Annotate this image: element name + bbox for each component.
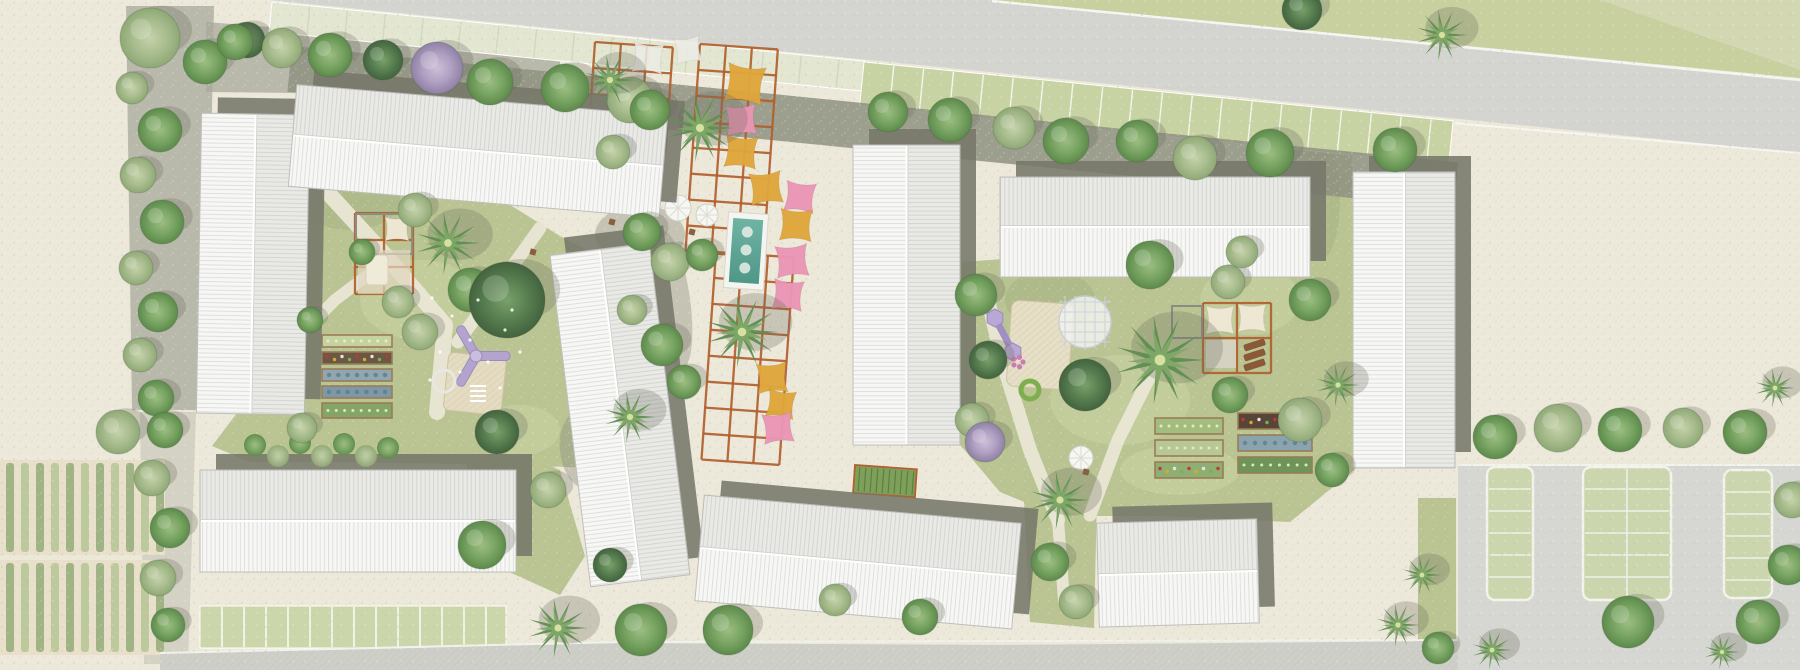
tree-highlight (157, 515, 171, 529)
raised-bed-east (1238, 457, 1312, 473)
tree-canopy (965, 422, 1005, 462)
tree-canopy (530, 472, 566, 508)
green-wall (853, 465, 917, 497)
raised-bed-east-sprouts (1160, 425, 1163, 428)
raised-bed-west-sprouts (343, 409, 346, 412)
roof-face-shaded (907, 145, 961, 445)
tree-highlight (483, 418, 498, 433)
tree-highlight (1181, 144, 1196, 159)
raised-bed-east-flowers (1158, 467, 1161, 470)
tree-canopy (1598, 408, 1642, 452)
raised-bed-west-flowers (325, 355, 328, 358)
raised-bed-west-sprouts (385, 409, 388, 412)
tree-highlight (140, 466, 153, 479)
tree-canopy (349, 239, 375, 265)
tree-highlight (122, 78, 133, 89)
tree-highlight (658, 250, 671, 263)
raised-bed-west-plants (364, 373, 368, 377)
tree-canopy (398, 193, 432, 227)
palm-crown (696, 124, 704, 132)
tree-highlight (104, 418, 119, 433)
tree-highlight (1038, 550, 1051, 563)
tree-highlight (624, 613, 642, 631)
pool (723, 212, 768, 291)
tree-canopy (1736, 600, 1780, 644)
raised-bed-east-sprouts (1192, 425, 1195, 428)
raised-bed-east-flowers (1187, 467, 1190, 470)
tree-highlight (223, 30, 236, 43)
shade-sail (762, 412, 795, 445)
raised-bed-west-sprouts (327, 340, 330, 343)
tree-highlight (191, 48, 206, 63)
raised-bed-west-plants (327, 390, 331, 394)
raised-bed-west-sprouts (360, 409, 363, 412)
meadow-flower (518, 350, 521, 353)
tree-highlight (292, 418, 303, 429)
raised-bed-west (322, 403, 392, 418)
palm-crown (1155, 355, 1166, 366)
tree-highlight (146, 566, 159, 579)
raised-bed-east-sprouts (1168, 425, 1171, 428)
meadow-flower (450, 314, 453, 317)
tree-highlight (125, 257, 137, 269)
tree-highlight (1428, 638, 1439, 649)
raised-bed-east-sprouts (1305, 464, 1308, 467)
palm-crown (1420, 573, 1425, 578)
tree-canopy (120, 8, 180, 68)
raised-bed-east-sprouts (1160, 447, 1163, 450)
tree-highlight (976, 348, 989, 361)
tree-highlight (146, 116, 161, 131)
raised-bed-east-flowers (1173, 467, 1176, 470)
tree-canopy (123, 338, 157, 372)
tree-highlight (825, 590, 836, 601)
building-block-f (1353, 156, 1471, 468)
tree-highlight (1232, 242, 1243, 253)
tree-canopy (819, 584, 851, 616)
raised-bed-east-sprouts (1216, 447, 1219, 450)
palm-crown (1335, 382, 1340, 387)
palm-crown (627, 414, 633, 420)
meadow-flower (428, 378, 431, 381)
raised-bed-east-plants (1273, 441, 1277, 445)
hedge-shrub (244, 434, 266, 456)
raised-bed-east-flowers (1257, 418, 1260, 421)
tree-highlight (302, 312, 311, 321)
palm-crown (444, 239, 452, 247)
tree-highlight (1611, 605, 1629, 623)
tree-canopy (1373, 128, 1417, 172)
tree-highlight (456, 276, 471, 291)
tree-canopy (96, 410, 140, 454)
tree-highlight (692, 245, 703, 256)
shade-sail (775, 244, 810, 279)
raised-bed-west-plants (355, 373, 359, 377)
raised-bed-west-plants (345, 390, 349, 394)
tree-canopy (651, 243, 689, 281)
tree-canopy (308, 33, 352, 77)
tree-canopy (596, 135, 630, 169)
tree-highlight (1254, 137, 1271, 154)
raised-bed-west-sprouts (335, 340, 338, 343)
tree-highlight (648, 331, 663, 346)
tree-canopy (1059, 359, 1111, 411)
palm-crown (738, 328, 747, 337)
meadow-flower (498, 386, 501, 389)
tree-highlight (404, 199, 416, 211)
tree-highlight (875, 99, 889, 113)
raised-bed-west-sprouts (385, 340, 388, 343)
tree-highlight (1670, 415, 1684, 429)
raised-bed-west-flowers (363, 358, 366, 361)
raised-bed-east-sprouts (1287, 464, 1290, 467)
tree-canopy (1043, 118, 1089, 164)
tree-highlight (536, 478, 549, 491)
parasol (1069, 446, 1093, 470)
tree-canopy (617, 295, 647, 325)
tree-highlight (1134, 249, 1151, 266)
tree-canopy (1226, 236, 1258, 268)
tree-canopy (1278, 398, 1322, 442)
raised-bed-east-plants (1283, 441, 1287, 445)
parasol (696, 204, 718, 226)
tree-canopy (402, 314, 438, 350)
tree-highlight (388, 292, 399, 303)
raised-bed-east-sprouts (1243, 464, 1246, 467)
raised-bed-east-sprouts (1251, 464, 1254, 467)
tree-canopy (119, 251, 153, 285)
raised-bed-west-plants (345, 373, 349, 377)
tree-canopy (623, 213, 661, 251)
tree-canopy (297, 307, 323, 333)
tree-canopy (1031, 543, 1069, 581)
raised-bed-east-sprouts (1260, 464, 1263, 467)
tree-canopy (138, 292, 178, 332)
tree-highlight (1123, 127, 1138, 142)
tree-highlight (1296, 286, 1311, 301)
tree-highlight (1051, 126, 1067, 142)
tree-canopy (641, 324, 683, 366)
tree-canopy (138, 380, 174, 416)
raised-bed-east-sprouts (1278, 464, 1281, 467)
tree-highlight (354, 244, 363, 253)
tree-highlight (673, 371, 685, 383)
raised-bed-east-flowers (1209, 470, 1212, 473)
tree-canopy (1173, 136, 1217, 180)
tree-canopy (667, 365, 701, 399)
palm-crown (1720, 650, 1724, 654)
raised-bed-east-sprouts (1296, 464, 1299, 467)
roof-face-shaded (1404, 172, 1455, 468)
raised-bed-west-flowers (355, 355, 358, 358)
tree-canopy (1126, 241, 1174, 289)
tree-canopy (467, 59, 513, 105)
raised-bed-east-sprouts (1216, 425, 1219, 428)
tree-highlight (126, 163, 139, 176)
raised-bed-east-flowers (1265, 421, 1268, 424)
raised-bed-east-sprouts (1168, 447, 1171, 450)
tree-highlight (908, 605, 921, 618)
tree-canopy (593, 548, 627, 582)
raised-bed-west-sprouts (351, 409, 354, 412)
tree-canopy (686, 239, 718, 271)
tree-canopy (1663, 408, 1703, 448)
meadow-flower (503, 328, 506, 331)
raised-bed-east (1155, 418, 1223, 434)
hedge-shrub (333, 433, 355, 455)
meadow-flower (476, 298, 479, 301)
tree-highlight (1068, 368, 1086, 386)
tree-canopy (1534, 404, 1582, 452)
palm-crown (554, 624, 561, 631)
play-structure-hub (470, 350, 482, 362)
raised-bed-west-sprouts (368, 409, 371, 412)
hedge-shrub (311, 445, 333, 467)
palm-crown (1490, 648, 1495, 653)
raised-bed-east (1155, 440, 1223, 456)
tree-highlight (961, 409, 973, 421)
tree-highlight (1606, 416, 1621, 431)
raised-bed-east-flowers (1180, 470, 1183, 473)
tree-highlight (622, 300, 633, 311)
raised-bed-west-plants (336, 373, 340, 377)
tree-highlight (1731, 418, 1746, 433)
tree-canopy (140, 200, 184, 244)
tree-canopy (134, 460, 170, 496)
tree-highlight (1381, 136, 1396, 151)
raised-bed-east-sprouts (1200, 425, 1203, 428)
raised-bed-east-flowers (1241, 418, 1244, 421)
tree-highlight (482, 275, 509, 302)
tree-highlight (1286, 406, 1301, 421)
raised-bed-east-flowers (1166, 470, 1169, 473)
raised-bed-east-sprouts (1269, 464, 1272, 467)
tree-canopy (140, 560, 176, 596)
tree-canopy (1059, 585, 1093, 619)
raised-bed-west-flowers (333, 358, 336, 361)
tree-canopy (1211, 265, 1245, 299)
raised-bed-east-flowers (1195, 470, 1198, 473)
tree-canopy (262, 28, 302, 68)
tree-canopy (1315, 453, 1349, 487)
tree-canopy (1116, 120, 1158, 162)
raised-bed-west-sprouts (327, 409, 330, 412)
tree-highlight (599, 554, 611, 566)
tree-canopy (120, 157, 156, 193)
raised-bed-west-plants (355, 390, 359, 394)
flower-spinner (1011, 362, 1016, 367)
tree-highlight (145, 299, 159, 313)
raised-bed-west-sprouts (351, 340, 354, 343)
tree-canopy (469, 262, 545, 338)
raised-bed-west-sprouts (343, 340, 346, 343)
tree-canopy (1473, 415, 1517, 459)
tree-highlight (269, 35, 283, 49)
shade-sail (1238, 304, 1266, 332)
tree-canopy (150, 508, 190, 548)
tree-canopy (703, 605, 753, 655)
tree-canopy (928, 98, 972, 142)
tree-highlight (1217, 271, 1229, 283)
tree-highlight (712, 614, 730, 632)
tree-highlight (602, 141, 614, 153)
tree-canopy (902, 599, 938, 635)
tree-highlight (637, 97, 651, 111)
tree-canopy (151, 608, 185, 642)
tree-canopy (411, 42, 463, 94)
tree-highlight (1218, 383, 1231, 396)
raised-bed-east-plants (1253, 441, 1257, 445)
tree-canopy (969, 341, 1007, 379)
raised-bed-east-plants (1263, 441, 1267, 445)
tree-highlight (408, 320, 421, 333)
hedge-shrub (355, 445, 377, 467)
tree-highlight (1481, 423, 1496, 438)
shade-sail (783, 180, 816, 213)
tree-canopy (1289, 279, 1331, 321)
tree-canopy (868, 92, 908, 132)
palm-crown (1056, 496, 1063, 503)
raised-bed-east-plants (1243, 441, 1247, 445)
tree-highlight (316, 41, 331, 56)
raised-bed-west-plants (383, 373, 387, 377)
tree-canopy (1602, 596, 1654, 648)
meadow-flower (486, 360, 489, 363)
tree-canopy (382, 286, 414, 318)
hedge-shrub (267, 445, 289, 467)
tree-canopy (541, 64, 589, 112)
meadow-flower (458, 370, 461, 373)
roof-face-shaded (1000, 177, 1310, 227)
raised-bed-west (322, 335, 392, 347)
tree-canopy (630, 90, 670, 130)
raised-bed-west-flowers (385, 355, 388, 358)
tree-highlight (370, 47, 384, 61)
flower-spinner (1017, 364, 1022, 369)
raised-bed-west-sprouts (368, 340, 371, 343)
meadow-flower (510, 308, 513, 311)
raised-bed-west-sprouts (335, 409, 338, 412)
tree-canopy (1246, 129, 1294, 177)
tree-canopy (138, 108, 182, 152)
tree-highlight (972, 429, 986, 443)
tree-highlight (1780, 488, 1793, 501)
tree-highlight (936, 106, 951, 121)
raised-bed-east-sprouts (1176, 447, 1179, 450)
roof-face-shaded (1097, 519, 1258, 575)
raised-bed-east-sprouts (1184, 447, 1187, 450)
tree-canopy (955, 274, 997, 316)
roof-face-shaded (200, 470, 516, 521)
tree-highlight (129, 344, 141, 356)
tree-canopy (116, 72, 148, 104)
tree-highlight (630, 220, 643, 233)
raised-bed-west-flowers (370, 355, 373, 358)
meadow-flower (430, 296, 433, 299)
tree-highlight (1321, 459, 1333, 471)
shade-sail (673, 35, 702, 64)
tree-highlight (153, 418, 166, 431)
tree-highlight (144, 386, 157, 399)
site-plan (0, 0, 1800, 670)
raised-bed-west-plants (383, 390, 387, 394)
raised-bed-west-plants (373, 373, 377, 377)
tree-highlight (157, 614, 169, 626)
raised-bed-east-flowers (1249, 421, 1252, 424)
raised-bed-east-sprouts (1184, 425, 1187, 428)
raised-bed-east-flowers (1202, 467, 1205, 470)
tree-highlight (1775, 552, 1789, 566)
palm-crown (607, 77, 613, 83)
meadow-flower (438, 350, 441, 353)
tree-highlight (1000, 114, 1015, 129)
raised-bed-east-sprouts (1208, 425, 1211, 428)
raised-bed-east-sprouts (1200, 447, 1203, 450)
tree-canopy (363, 40, 403, 80)
tree-highlight (466, 529, 483, 546)
raised-bed-west-plants (364, 390, 368, 394)
raised-bed-east-sprouts (1208, 447, 1211, 450)
site-plan-stage (0, 0, 1800, 670)
tree-canopy (1212, 377, 1248, 413)
shade-sail (779, 208, 813, 242)
tree-canopy (993, 107, 1035, 149)
tree-canopy (147, 412, 183, 448)
raised-bed-west-flowers (348, 358, 351, 361)
raised-bed-west-sprouts (376, 340, 379, 343)
tree-highlight (1065, 591, 1077, 603)
tree-canopy (287, 413, 317, 443)
flower-spinner (1020, 359, 1025, 364)
raised-bed-west-sprouts (360, 340, 363, 343)
tree-highlight (1542, 412, 1559, 429)
raised-bed-east-flowers (1216, 467, 1219, 470)
meadow-flower (468, 338, 471, 341)
raised-bed-east-flowers (1273, 418, 1276, 421)
tree-highlight (148, 208, 163, 223)
raised-bed-east-sprouts (1192, 447, 1195, 450)
raised-bed-west-flowers (340, 355, 343, 358)
shade-sail (748, 170, 783, 205)
tree-highlight (1744, 608, 1759, 623)
tree-canopy (458, 521, 506, 569)
tree-highlight (131, 19, 152, 40)
palm-crown (1773, 386, 1778, 391)
raised-bed-east-sprouts (1176, 425, 1179, 428)
tree-highlight (962, 281, 977, 296)
raised-bed-west-sprouts (376, 409, 379, 412)
raised-bed-west-plants (373, 390, 377, 394)
tree-highlight (420, 51, 438, 69)
raised-bed-west-plants (336, 390, 340, 394)
tree-canopy (217, 24, 253, 60)
climbing-dome (1059, 296, 1111, 348)
raised-bed-west-plants (327, 373, 331, 377)
tree-highlight (475, 67, 491, 83)
tree-highlight (549, 72, 566, 89)
tree-canopy (1422, 632, 1454, 664)
tree-canopy (1723, 410, 1767, 454)
building-block-i (1096, 503, 1275, 628)
tree-canopy (615, 604, 667, 656)
palm-crown (1395, 622, 1400, 627)
tree-canopy (475, 410, 519, 454)
flower-spinner (1017, 355, 1022, 360)
raised-bed-west-flowers (378, 358, 381, 361)
palm-crown (1439, 32, 1445, 38)
hedge-shrub (377, 437, 399, 459)
